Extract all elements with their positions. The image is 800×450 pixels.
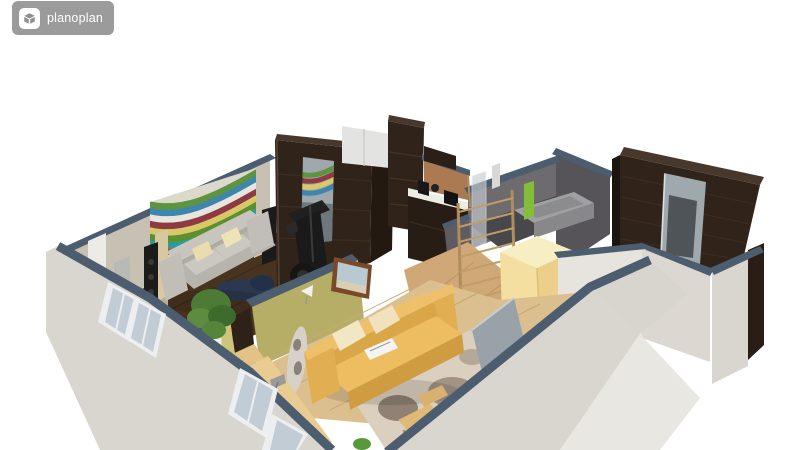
planoplan-box-icon	[19, 8, 40, 29]
floor-plant[interactable]	[353, 438, 371, 450]
planoplan-app-window: planoplan	[0, 0, 800, 450]
floorplan-3d-viewport[interactable]	[0, 0, 800, 450]
logo-wordmark: planoplan	[47, 11, 103, 25]
pouf[interactable]	[250, 275, 274, 291]
wall-cabinet	[492, 163, 500, 189]
planoplan-logo[interactable]: planoplan	[12, 1, 114, 35]
green-towel	[524, 181, 534, 220]
kettle	[431, 184, 439, 192]
